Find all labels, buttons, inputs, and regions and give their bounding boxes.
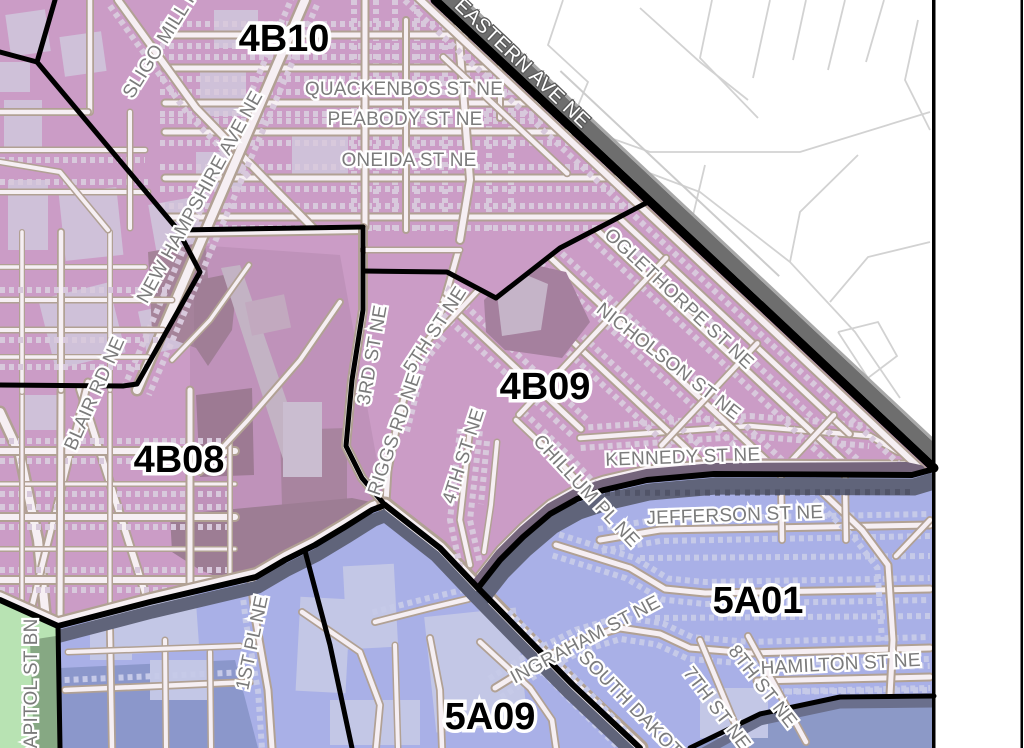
svg-text:PEABODY ST NE: PEABODY ST NE [327, 109, 482, 130]
svg-text:5A09: 5A09 [445, 696, 536, 738]
svg-text:4B10: 4B10 [239, 18, 330, 60]
svg-text:ONEIDA ST NE: ONEIDA ST NE [341, 150, 476, 171]
svg-text:N CAPITOL ST BN: N CAPITOL ST BN [21, 618, 42, 748]
svg-text:QUACKENBOS ST NE: QUACKENBOS ST NE [305, 79, 503, 100]
svg-text:4B08: 4B08 [134, 439, 225, 481]
svg-text:4B09: 4B09 [500, 366, 591, 408]
svg-text:5A01: 5A01 [713, 580, 804, 622]
